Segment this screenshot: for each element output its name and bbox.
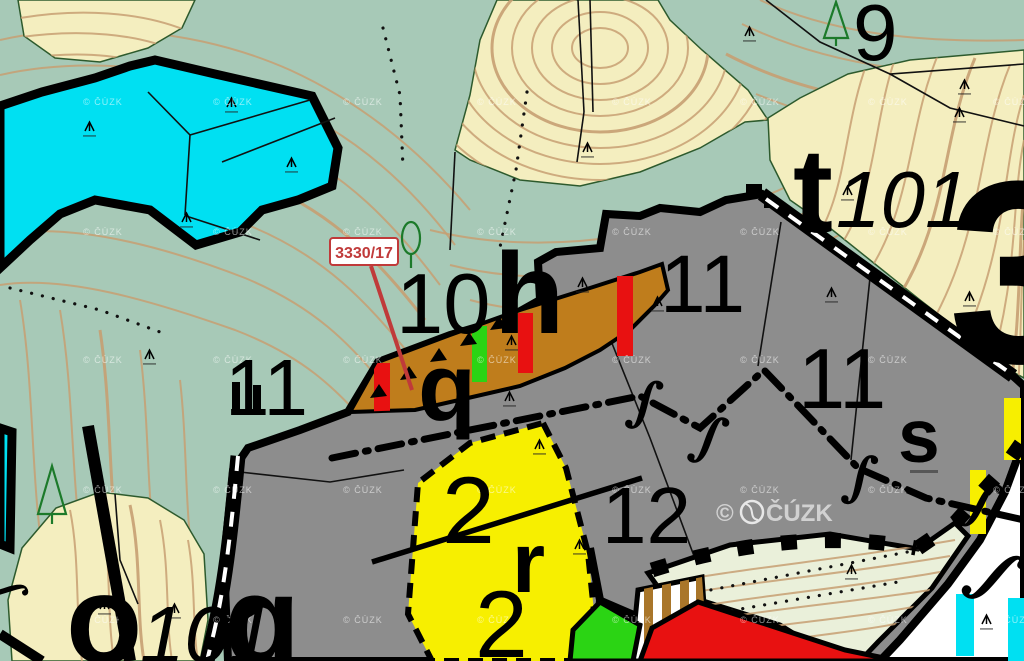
map-label-11c: 11 [798,332,886,427]
copyright-watermark: © ČÚZK [213,97,253,107]
cadastral-map-canvas[interactable]: ∫ ∫ ∫ ∫ ∫ ∫ © ČÚZK© ČÚZK© ČÚZK© ČÚZK© ČÚ… [0,0,1024,661]
map-label-9: 9 [853,0,898,77]
strip-cyan-2 [1008,598,1024,661]
copyright-watermark: © ČÚZK [343,485,383,495]
stripe-red-3 [617,276,633,356]
copyright-watermark: © ČÚZK [477,97,517,107]
watermark-text: ČÚZK [766,499,833,527]
copyright-watermark: © ČÚZK [213,485,253,495]
map-label-11a: 11 [225,343,308,432]
map-label-12: 12 [602,471,691,560]
copyright-watermark: © ČÚZK [612,97,652,107]
copyright-watermark: © ČÚZK [612,355,652,365]
copyright-watermark: © ČÚZK [740,485,780,495]
copyright-watermark: © ČÚZK [343,227,383,237]
copyright-watermark: © ČÚZK [612,615,652,625]
boundary-notch [746,184,762,197]
copyright-watermark: © ČÚZK [213,227,253,237]
map-label-o: o [66,551,142,661]
copyright-watermark: © ČÚZK [83,97,123,107]
copyright-watermark: © ČÚZK [740,227,780,237]
copyright-watermark: © ČÚZK [83,227,123,237]
copyright-watermark: © ČÚZK [993,485,1024,495]
map-label-s: s [898,394,940,478]
parcel-water-cyan-sliver[interactable] [0,428,12,548]
map-label-3: 3 [948,128,1024,418]
copyright-watermark: © ČÚZK [868,97,908,107]
copyright-watermark: © ČÚZK [612,227,652,237]
map-label-2b: 2 [475,572,528,661]
map-label-h: h [494,230,564,358]
copyright-watermark: © ČÚZK [343,355,383,365]
copyright-watermark: © ČÚZK [993,97,1024,107]
copyright-watermark: © ČÚZK [343,615,383,625]
copyright-watermark: © ČÚZK [868,615,908,625]
map-label-q2: q [224,551,300,661]
copyright-watermark: © ČÚZK [83,355,123,365]
map-label-q1: q [418,335,476,441]
large-copyright-watermark: © ČÚZK [716,499,833,527]
copyright-sign: © [716,500,734,527]
map-label-t: t [793,124,833,258]
copyright-watermark: © ČÚZK [993,615,1024,625]
copyright-watermark: © ČÚZK [740,615,780,625]
copyright-watermark: © ČÚZK [868,485,908,495]
copyright-watermark: © ČÚZK [740,355,780,365]
map-label-2a: 2 [442,458,495,564]
cadastral-map-viewport[interactable]: ∫ ∫ ∫ ∫ ∫ ∫ © ČÚZK© ČÚZK© ČÚZK© ČÚZK© ČÚ… [0,0,1024,661]
map-label-11b: 11 [660,239,745,330]
copyright-watermark: © ČÚZK [740,97,780,107]
copyright-watermark: © ČÚZK [83,485,123,495]
highlighted-parcel-label: 3330/17 [335,245,393,262]
copyright-watermark: © ČÚZK [343,97,383,107]
